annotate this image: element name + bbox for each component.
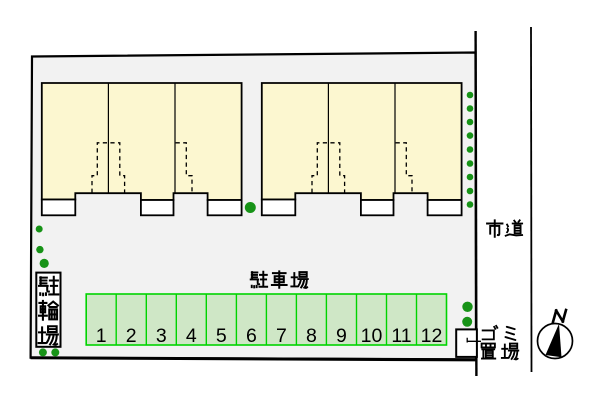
- svg-text:8: 8: [306, 325, 317, 347]
- svg-text:6: 6: [246, 325, 257, 347]
- svg-text:9: 9: [336, 325, 347, 347]
- svg-text:11: 11: [391, 325, 411, 347]
- svg-text:2: 2: [126, 325, 137, 347]
- svg-text:4: 4: [186, 325, 197, 347]
- svg-text:3: 3: [156, 325, 167, 347]
- svg-text:5: 5: [216, 325, 227, 347]
- svg-text:1: 1: [96, 325, 107, 347]
- svg-text:12: 12: [421, 325, 443, 347]
- svg-text:10: 10: [361, 325, 383, 347]
- svg-text:7: 7: [276, 325, 287, 347]
